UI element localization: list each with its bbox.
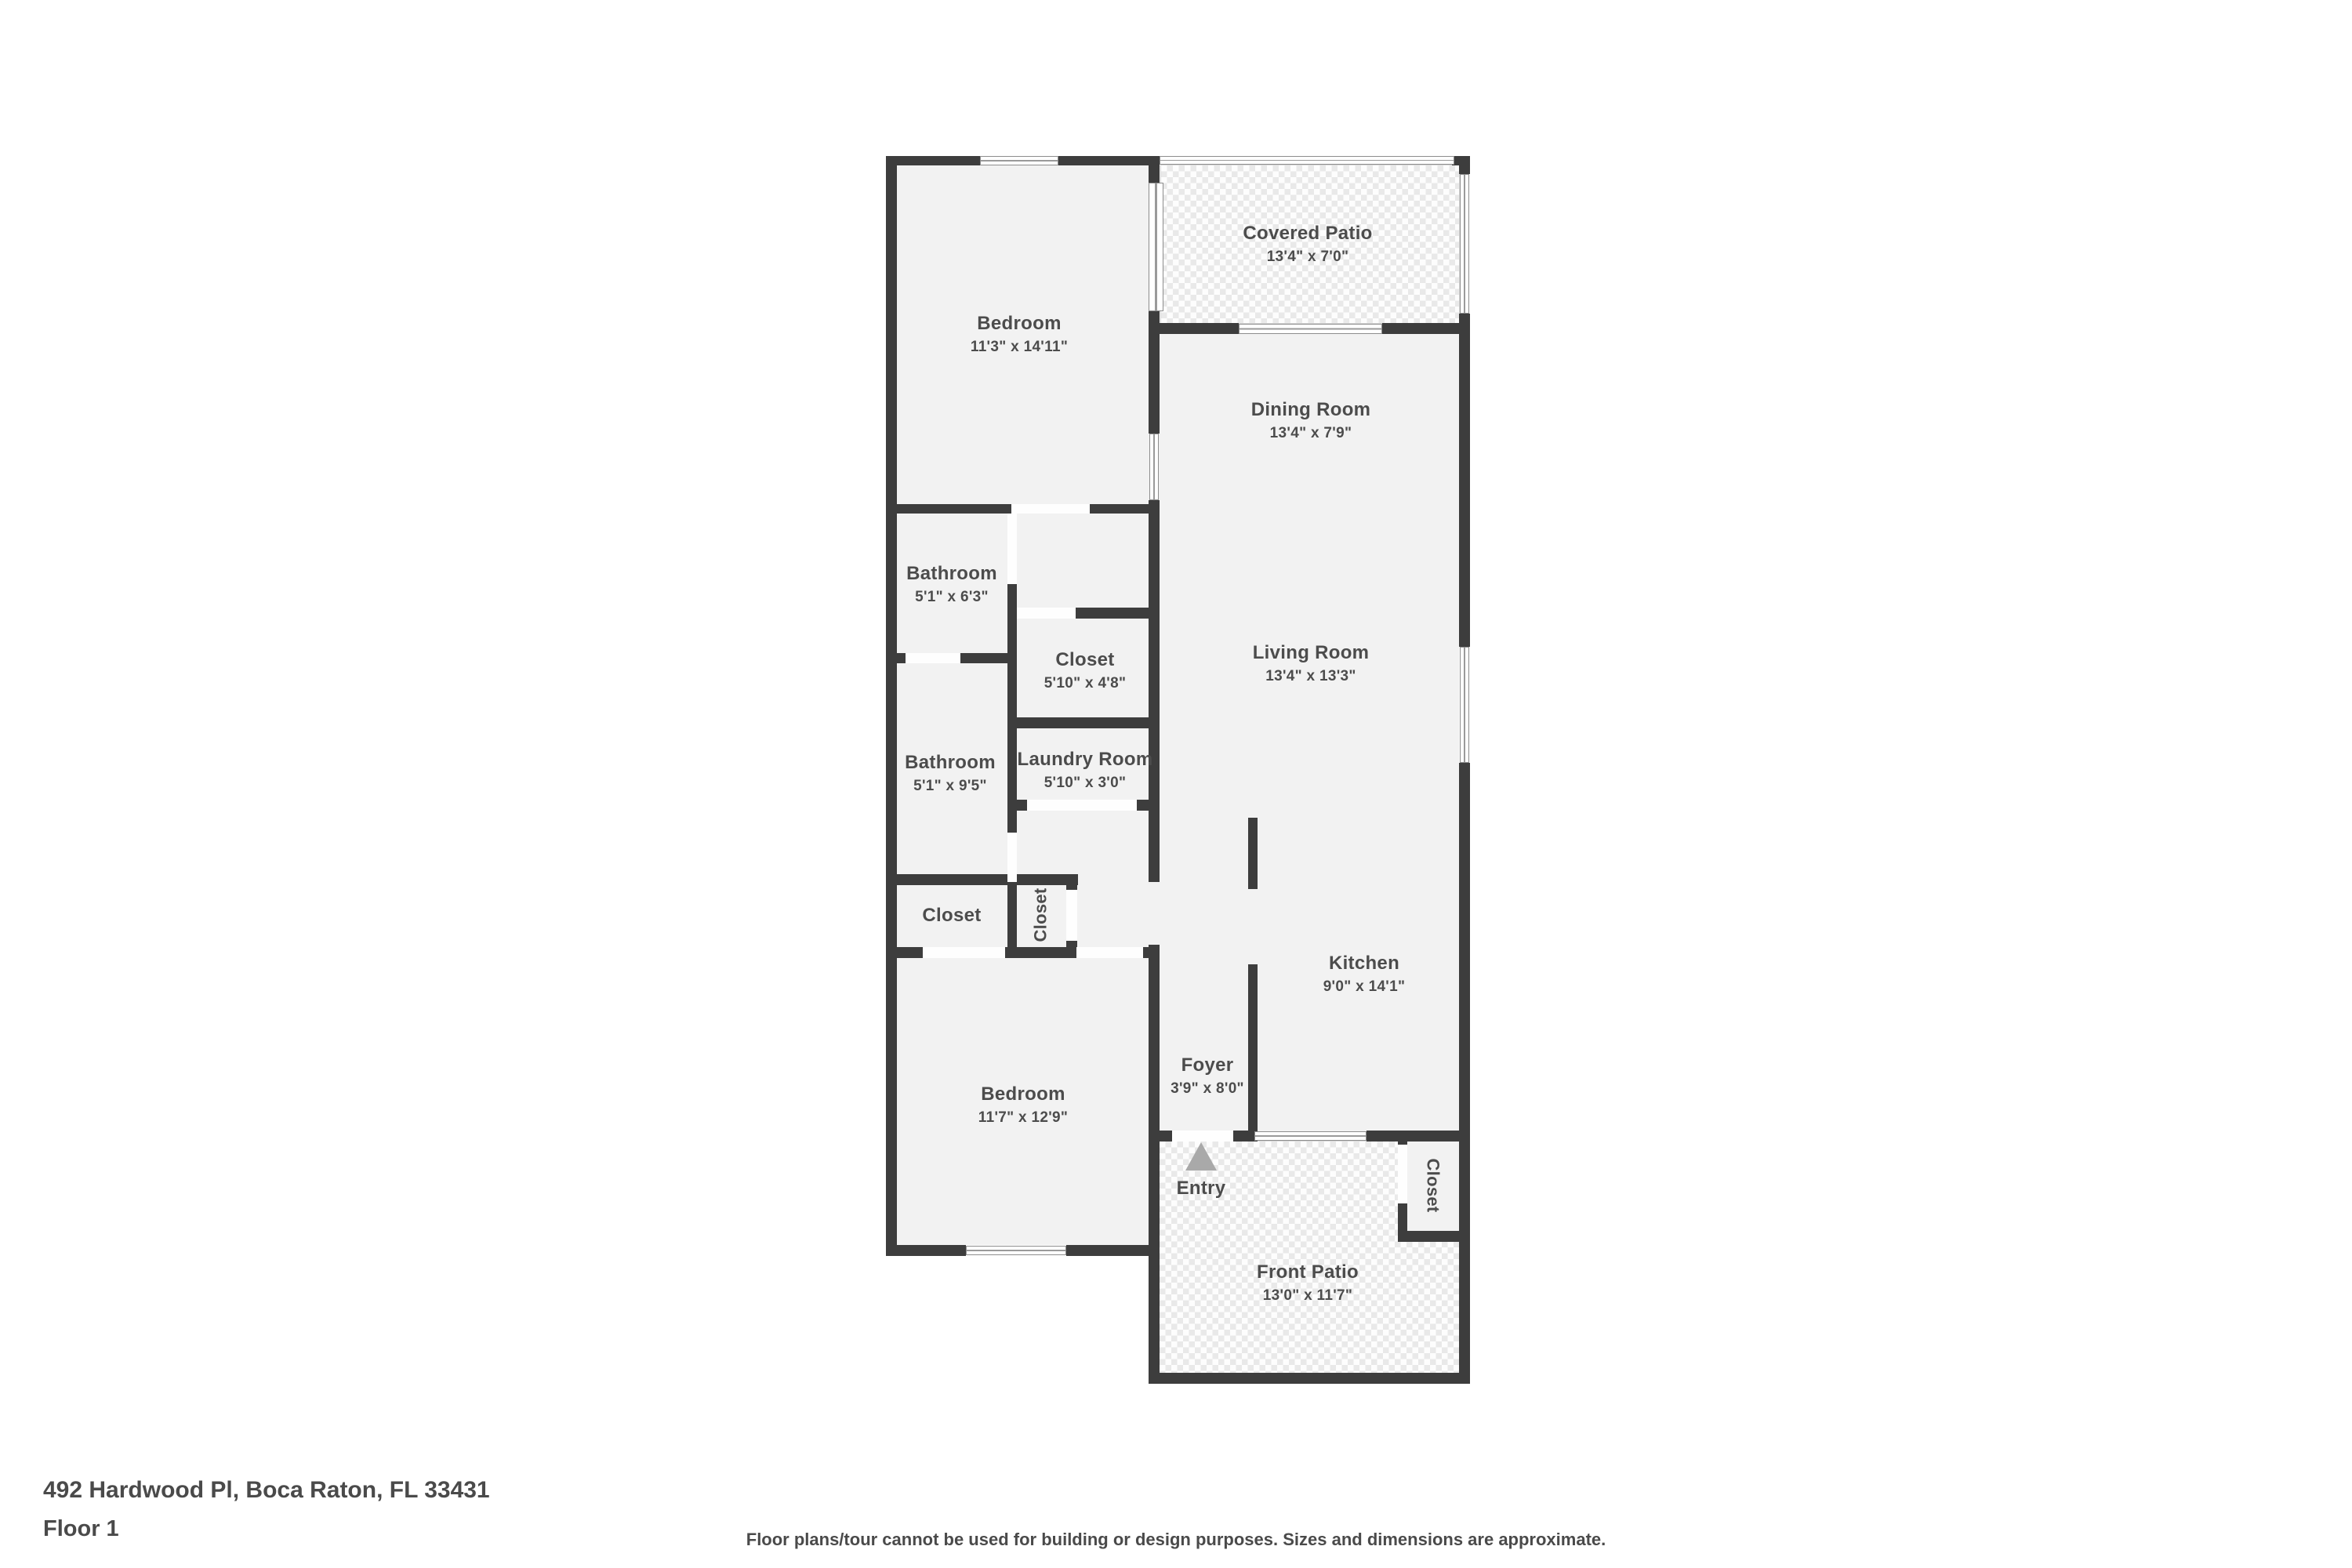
- wall-segment: [1382, 323, 1470, 334]
- wall-segment: [1076, 608, 1160, 619]
- door-opening: [1398, 1145, 1407, 1203]
- wall-segment: [1367, 1131, 1470, 1142]
- room-label-covered-patio: Covered Patio 13'4" x 7'0": [1243, 220, 1372, 267]
- window: [966, 1246, 1066, 1255]
- door-opening: [1007, 833, 1017, 882]
- door-opening: [1076, 947, 1143, 958]
- wall-segment: [1459, 763, 1470, 1384]
- door-opening: [906, 653, 960, 663]
- room-label-bathroom-mid: Bathroom 5'1" x 9'5": [905, 750, 996, 797]
- wall-segment: [1149, 1142, 1160, 1384]
- room-label-entry: Entry: [1177, 1175, 1226, 1202]
- wall-segment: [1149, 323, 1239, 334]
- room-label-closet-entry: Closet: [1421, 1158, 1445, 1212]
- wall-segment: [1005, 947, 1076, 958]
- address-text: 492 Hardwood Pl, Boca Raton, FL 33431: [43, 1477, 490, 1504]
- wall-segment: [1137, 800, 1160, 811]
- wall-segment: [1007, 717, 1160, 728]
- door-opening: [1066, 890, 1077, 941]
- wall-segment: [886, 947, 923, 958]
- wall-segment: [886, 156, 980, 165]
- wall-segment: [1459, 314, 1470, 647]
- wall-segment: [886, 874, 1078, 885]
- room-label-laundry-room: Laundry Room 5'10" x 3'0": [1018, 746, 1153, 793]
- wall-segment: [960, 653, 1017, 663]
- door-opening: [1017, 608, 1076, 619]
- door-opening: [923, 947, 1005, 958]
- window: [1460, 647, 1469, 763]
- window: [1254, 1131, 1367, 1141]
- room-label-front-patio: Front Patio 13'0" x 11'7": [1257, 1259, 1359, 1306]
- floor-plan: Covered Patio 13'4" x 7'0" Bedroom 11'3"…: [0, 0, 2352, 1568]
- wall-segment: [1066, 1245, 1160, 1256]
- wall-segment: [1007, 800, 1027, 811]
- door-opening: [1027, 800, 1137, 811]
- room-label-closet-hall-vertical: Closet: [1029, 887, 1054, 942]
- wall-segment: [1248, 964, 1258, 1142]
- window: [980, 156, 1058, 165]
- room-label-bathroom-top: Bathroom 5'1" x 6'3": [906, 561, 997, 608]
- wall-segment: [1398, 1231, 1470, 1242]
- wall-segment: [1149, 500, 1160, 882]
- floor-label: Floor 1: [43, 1516, 119, 1542]
- wall-segment: [886, 1245, 966, 1256]
- wall-segment: [886, 156, 897, 1256]
- window: [1460, 174, 1469, 314]
- wall-segment: [1149, 1373, 1470, 1384]
- wall-segment: [1233, 1131, 1254, 1142]
- room-label-closet-hall-left: Closet: [922, 902, 981, 929]
- door-opening: [1007, 514, 1017, 584]
- window: [1149, 434, 1159, 500]
- wall-segment: [1149, 945, 1160, 1142]
- window: [1160, 156, 1454, 165]
- wall-segment: [1058, 156, 1160, 165]
- disclaimer-text: Floor plans/tour cannot be used for buil…: [746, 1530, 1606, 1550]
- room-label-kitchen: Kitchen 9'0" x 14'1": [1323, 950, 1406, 997]
- sliding-door: [1239, 324, 1382, 334]
- room-label-living-room: Living Room 13'4" x 13'3": [1253, 640, 1370, 687]
- wall-segment: [1452, 156, 1470, 165]
- wall-segment: [1090, 504, 1160, 514]
- window: [1149, 183, 1163, 311]
- wall-segment: [1149, 1131, 1172, 1142]
- wall-segment: [1007, 584, 1017, 833]
- room-label-dining-room: Dining Room 13'4" x 7'9": [1251, 397, 1371, 444]
- wall-segment: [886, 504, 1011, 514]
- entry-arrow-icon: [1185, 1142, 1217, 1171]
- room-label-foyer: Foyer 3'9" x 8'0": [1171, 1052, 1244, 1099]
- room-label-bedroom-bottom: Bedroom 11'7" x 12'9": [978, 1081, 1068, 1128]
- wall-segment: [1143, 947, 1160, 958]
- room-label-closet-mid: Closet 5'10" x 4'8": [1044, 647, 1127, 694]
- wall-segment: [886, 653, 906, 663]
- room-label-bedroom-top: Bedroom 11'3" x 14'11": [971, 310, 1068, 358]
- wall-segment: [1248, 818, 1258, 889]
- door-opening: [1011, 504, 1090, 514]
- front-door-opening: [1172, 1131, 1233, 1142]
